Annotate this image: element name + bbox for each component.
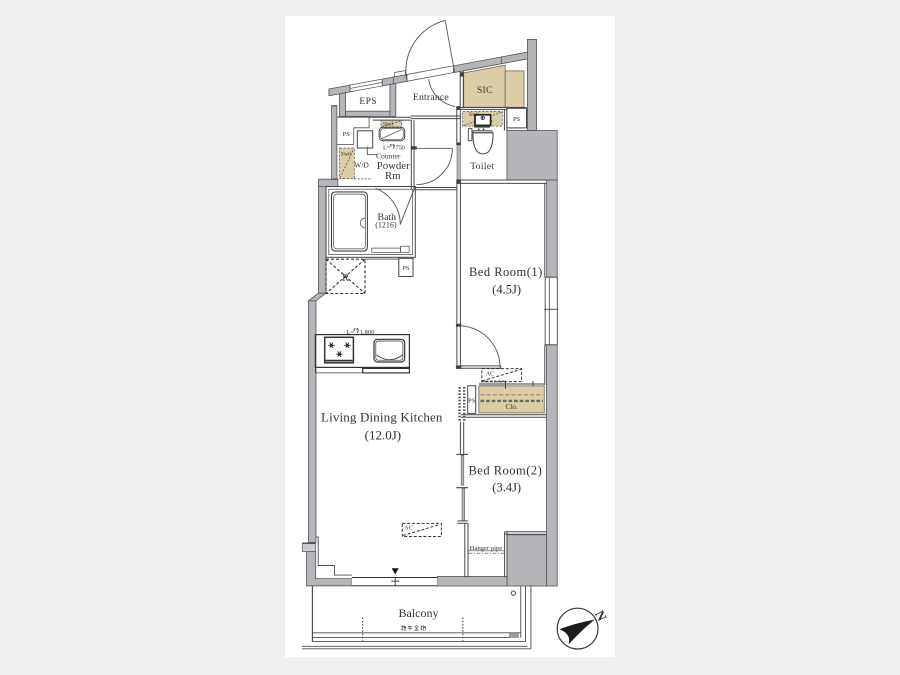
svg-text:SIC: SIC [477,86,493,96]
svg-text:(1216): (1216) [375,220,397,229]
svg-text:PS: PS [513,116,521,123]
svg-text:Living Dining Kitchen: Living Dining Kitchen [321,409,443,424]
svg-text:750: 750 [396,144,405,151]
svg-text:1,800: 1,800 [360,329,376,336]
svg-text:(12.0J): (12.0J) [365,428,401,443]
svg-text:AC: AC [404,526,412,532]
svg-text:Rm: Rm [385,170,401,182]
svg-text:Entrance: Entrance [413,92,449,103]
svg-text:(4.5J): (4.5J) [492,283,521,297]
svg-text:(3.4J): (3.4J) [492,480,521,494]
svg-text:Hanger pipe: Hanger pipe [470,545,502,552]
svg-text:R: R [342,273,349,284]
svg-text:PS: PS [402,265,410,272]
svg-text:Shelf: Shelf [383,122,394,127]
svg-text:Counter: Counter [376,152,401,161]
svg-text:Shelf: Shelf [341,152,352,157]
svg-text:Shelf: Shelf [469,113,480,118]
svg-text:Toilet: Toilet [470,161,494,172]
svg-text:PS: PS [343,131,351,138]
svg-text:Clo.: Clo. [505,403,517,411]
svg-text:Bed Room(1): Bed Room(1) [469,265,543,279]
svg-text:AC: AC [486,372,494,378]
svg-text:PS: PS [468,397,476,404]
svg-text:Bed Room(2): Bed Room(2) [468,463,542,477]
svg-text:L=: L= [346,329,354,336]
svg-text:Balcony: Balcony [399,606,439,620]
svg-text:L=: L= [383,144,391,151]
svg-text:EPS: EPS [359,97,377,107]
svg-text:W/D: W/D [354,161,369,170]
